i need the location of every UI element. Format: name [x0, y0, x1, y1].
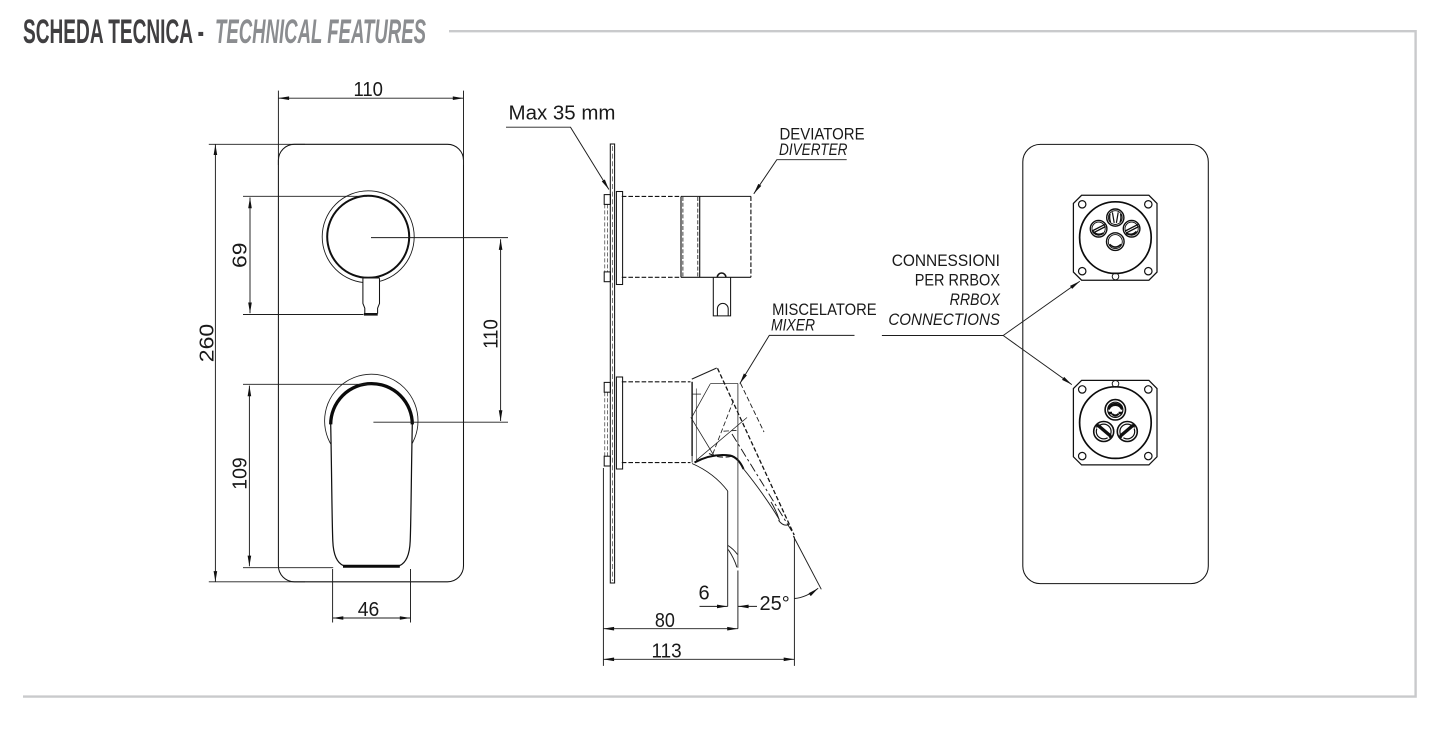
svg-text:110: 110: [480, 319, 502, 349]
svg-text:MIXER: MIXER: [771, 317, 815, 335]
svg-text:CONNECTIONS: CONNECTIONS: [888, 311, 1000, 329]
svg-text:SCHEDA TECNICA -: SCHEDA TECNICA -: [23, 13, 204, 51]
svg-text:69: 69: [229, 243, 251, 268]
svg-text:25°: 25°: [760, 593, 790, 615]
svg-text:110: 110: [353, 79, 383, 101]
svg-text:260: 260: [196, 324, 218, 363]
svg-text:TECHNICAL FEATURES: TECHNICAL FEATURES: [215, 13, 426, 51]
svg-text:46: 46: [358, 599, 380, 621]
svg-text:6: 6: [698, 583, 709, 605]
svg-text:DIVERTER: DIVERTER: [779, 141, 848, 159]
svg-text:PER RRBOX: PER RRBOX: [915, 272, 1000, 290]
svg-text:109: 109: [229, 457, 251, 490]
svg-text:113: 113: [652, 640, 682, 662]
svg-text:80: 80: [655, 610, 675, 632]
svg-text:CONNESSIONI: CONNESSIONI: [892, 252, 1000, 270]
svg-text:RRBOX: RRBOX: [950, 291, 1001, 309]
svg-text:Max 35 mm: Max 35 mm: [509, 103, 616, 125]
